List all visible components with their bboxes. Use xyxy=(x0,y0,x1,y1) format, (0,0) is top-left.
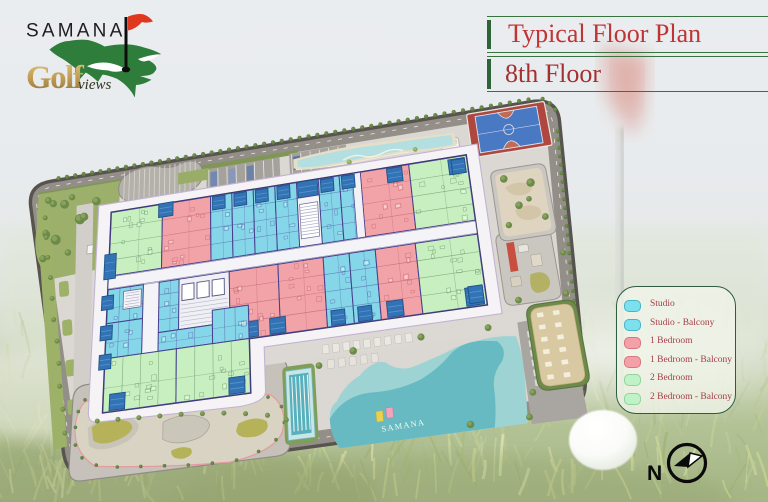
svg-text:SAMANA: SAMANA xyxy=(26,21,125,42)
svg-text:N: N xyxy=(647,462,662,485)
svg-text:Golf: Golf xyxy=(26,60,85,96)
svg-text:views: views xyxy=(78,77,111,93)
